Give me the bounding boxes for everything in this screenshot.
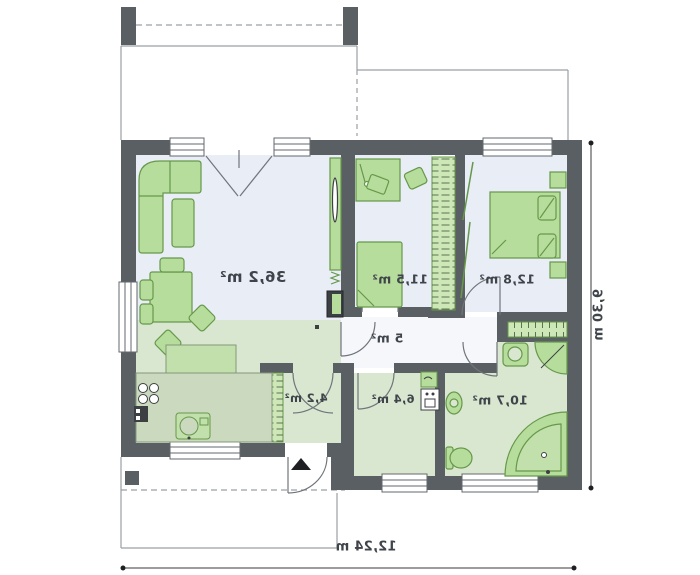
corridor-floor	[341, 317, 497, 368]
floor-plan: 36,2 m² 11,5 m² 12,8 m² 5 m² 4,2 m² 6,4 …	[0, 0, 700, 575]
window-bedroom	[483, 138, 552, 156]
closet-bathroom	[508, 322, 567, 337]
nightstand	[550, 262, 566, 278]
dimension-width-label: 12,24 m	[335, 540, 396, 555]
entrance-door	[288, 457, 327, 493]
room-label-bedroom: 12,8 m²	[479, 272, 535, 287]
tv	[333, 178, 338, 222]
kitchen-sink	[176, 413, 210, 440]
dining-chair	[160, 258, 184, 272]
window-kitchen	[170, 441, 240, 459]
terrace-pillar-left	[121, 7, 136, 45]
room-label-living: 36,2 m²	[220, 268, 287, 286]
dining-chair	[140, 304, 153, 324]
fireplace	[327, 291, 343, 317]
utility-floor	[354, 373, 435, 476]
window-bathroom	[462, 474, 538, 492]
toilet	[446, 447, 472, 469]
nightstand	[550, 172, 566, 188]
window-living-side	[119, 282, 137, 352]
porch-pillar	[125, 471, 139, 485]
boiler	[421, 372, 437, 387]
utility-room-fixtures	[421, 372, 439, 410]
washbasin	[503, 343, 528, 366]
kitchen-island	[166, 345, 236, 373]
window-living-1	[170, 138, 204, 156]
sensor-dot	[315, 325, 319, 329]
terrace-pillar-right	[343, 7, 358, 45]
small-washbasin	[446, 392, 462, 414]
room-label-utility: 6,4 m²	[371, 392, 414, 406]
entrance-arrow-icon	[291, 458, 311, 470]
chaise	[172, 199, 194, 247]
wardrobe-room-11-5	[432, 157, 455, 310]
dining-chair	[140, 280, 153, 300]
room-label-hall: 4,2 m²	[284, 391, 327, 405]
window-utility	[382, 474, 427, 492]
room-label-corridor: 5 m²	[371, 331, 404, 346]
room-label-11-5: 11,5 m²	[372, 272, 428, 287]
dining-table	[150, 272, 192, 322]
room-label-bathroom: 10,7 m²	[472, 393, 528, 408]
washing-machine	[421, 389, 439, 410]
window-living-2	[274, 138, 310, 156]
dimension-height-label: 9,30 m	[592, 289, 607, 341]
floor-plan-drawing	[0, 0, 700, 575]
